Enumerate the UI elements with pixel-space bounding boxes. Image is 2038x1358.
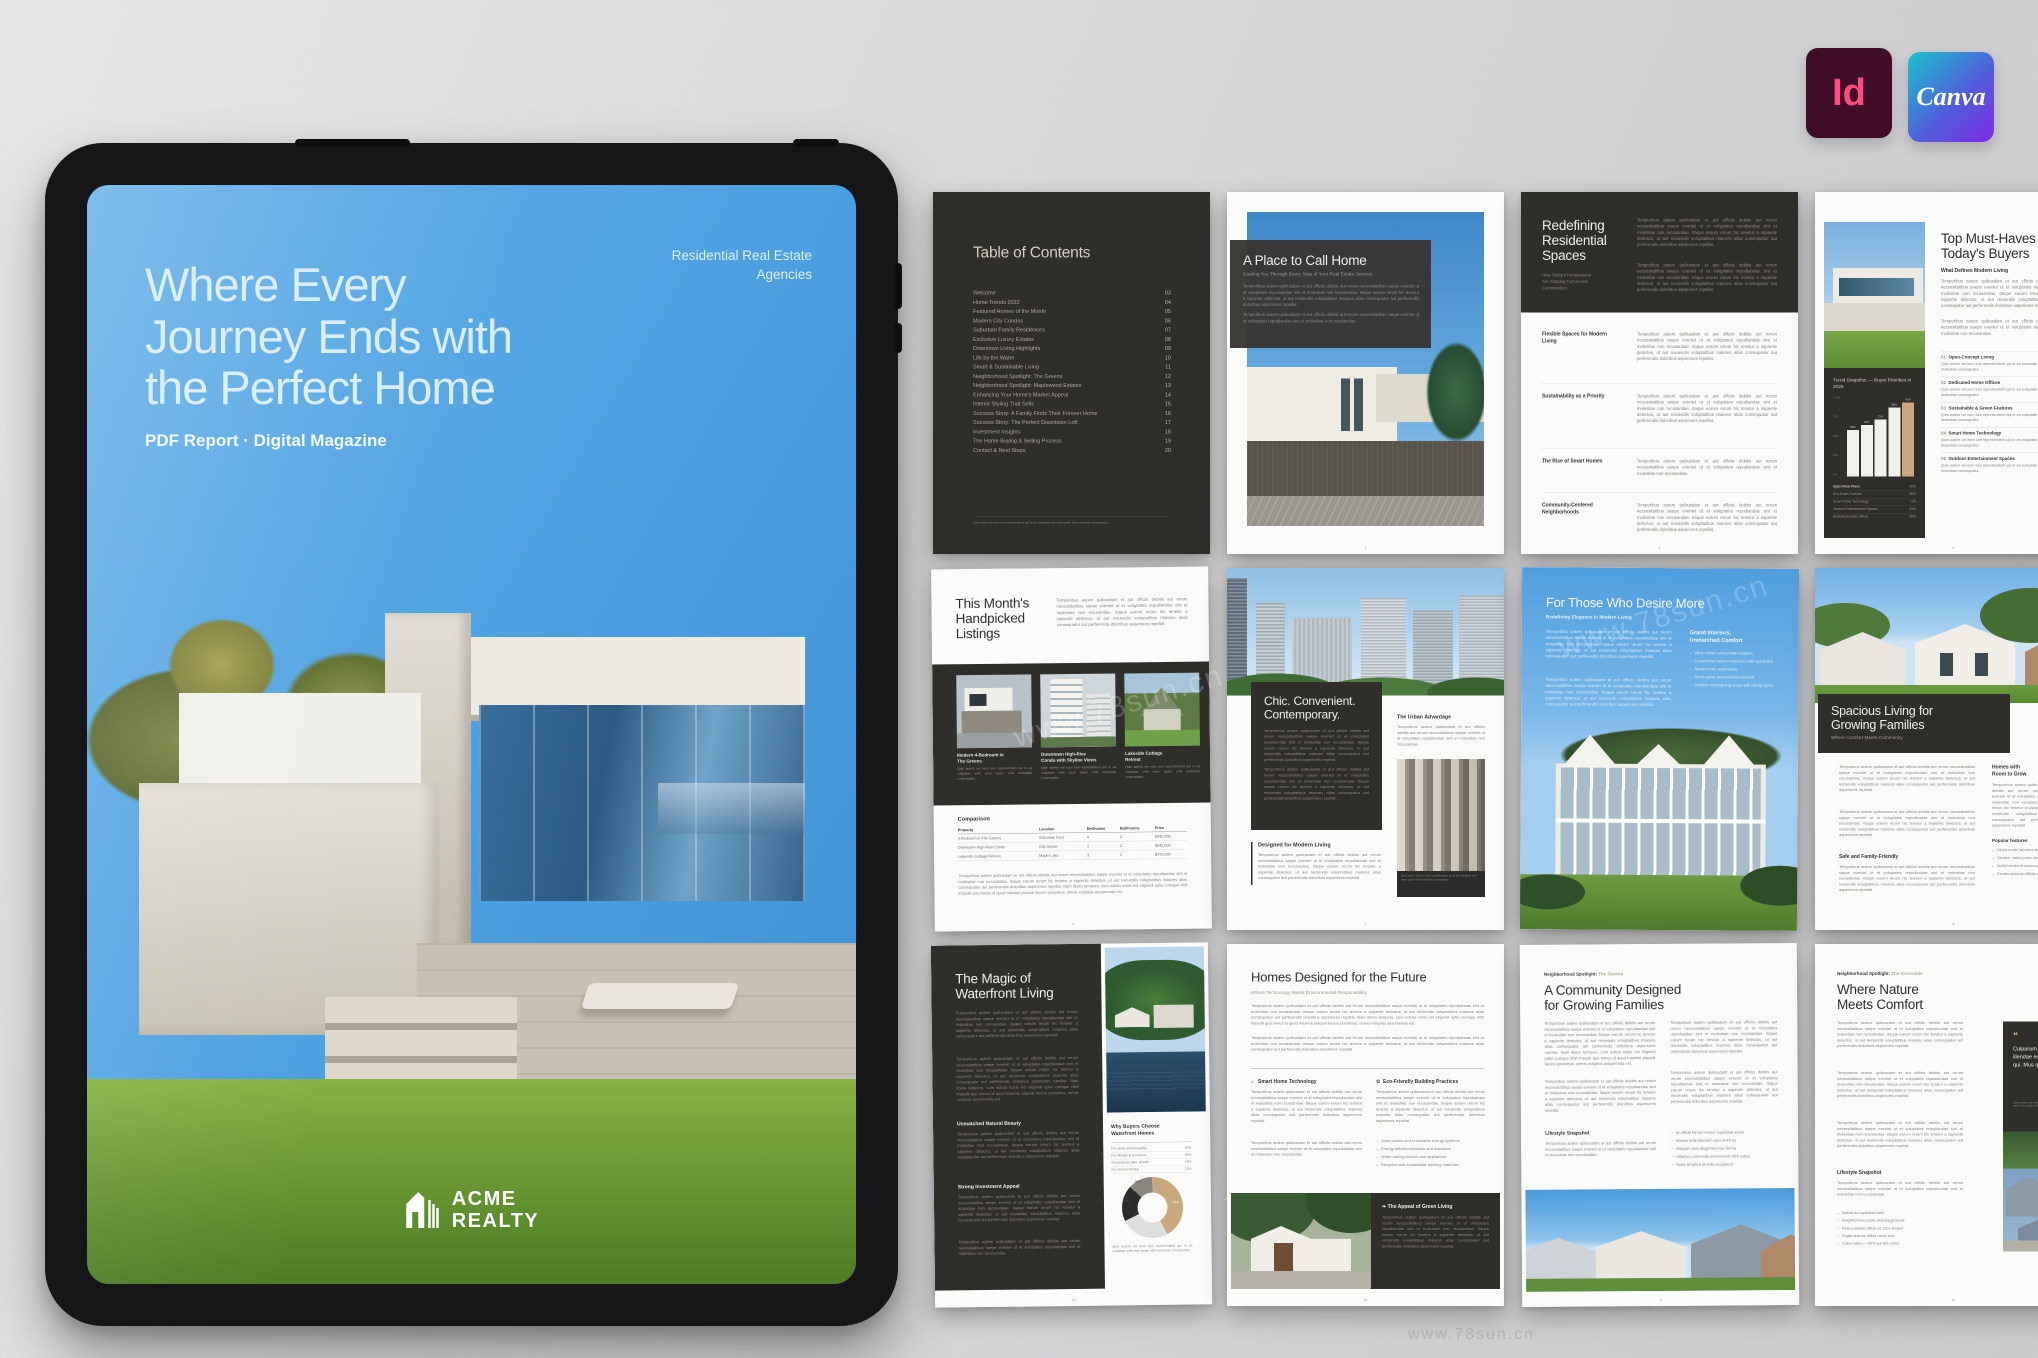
page-title: A Place to Call Home [1243, 253, 1418, 268]
section-title: Community-Centered Neighborhoods [1542, 502, 1622, 516]
toc-title: Table of Contents [973, 244, 1090, 261]
section-title: Flexible Spaces for Modern Living [1542, 331, 1622, 345]
page-waterfront-living: The Magic of Waterfront Living Temporibu… [931, 942, 1212, 1307]
page-table-of-contents: Table of Contents Welcome03 Home Trends … [933, 192, 1210, 554]
divider [1542, 383, 1777, 384]
feature-list: Litora morbi laborum analytics Veniam na… [1992, 847, 2038, 879]
page-for-those-who-desire-more: For Those Who Desire More Redefining Ele… [1520, 567, 1799, 931]
page-title: Top Must-Haves for Today's Buyers [1941, 231, 2038, 261]
page-number: 5 [1815, 547, 2038, 551]
page-subtitle: Where Technology Meets Environmental Res… [1251, 990, 1367, 996]
divider [1111, 1142, 1191, 1143]
page-community-designed: Neighborhood Spotlight: The Greens A Com… [1520, 943, 1800, 1307]
page-number: 3 [1227, 547, 1504, 551]
chart-panel-title: Why Buyers Choose Waterfront Homes [1111, 1123, 1160, 1138]
section-title: Designed for Modern Living [1258, 842, 1331, 848]
left-panel: The Magic of Waterfront Living Temporibu… [931, 944, 1105, 1291]
canva-logo-label: Canva [1916, 82, 1985, 112]
popular-features-label: Popular features [1992, 838, 2028, 843]
city-skyline-photo [1227, 568, 1504, 696]
waterfront-stats: For views and tranquility42% For lifesty… [1111, 1145, 1191, 1174]
divider [1251, 1068, 1484, 1069]
toc-footnote: Quis autem vel eum iure reprehenderit qu… [973, 521, 1123, 525]
panel-title: Grand Interiors, Unmatched Comfort [1690, 629, 1743, 645]
section-title: Lifestyle Snapshot [1545, 1130, 1589, 1136]
section-title: Strong Investment Appeal [958, 1184, 1020, 1190]
page-title: This Month's Handpicked Listings [955, 595, 1029, 641]
divider [1542, 492, 1777, 493]
section-title: Sustainability as a Priority [1542, 393, 1622, 400]
section-title: Lifestyle Snapshot [1837, 1170, 1881, 1176]
page-title: A Community Designed for Growing Familie… [1544, 982, 1681, 1013]
page-subtitle: How Today's Homebuyers Are Shaping Tomor… [1542, 272, 1591, 291]
title-card: Chic. Convenient. Contemporary. Temporib… [1251, 682, 1382, 830]
indesign-logo: Id [1806, 48, 1892, 138]
tablet-volume-up-button [894, 263, 902, 309]
page-subtitle: Guiding You Through Every Step of Your R… [1243, 272, 1418, 278]
quote-card: ❝ Culparum tempore doluptaquo illendae e… [2003, 1022, 2038, 1252]
page-title: Chic. Convenient. Contemporary. [1264, 695, 1369, 722]
page-title: For Those Who Desire More [1546, 595, 1705, 611]
page-title: Where Nature Meets Comfort [1837, 982, 1923, 1012]
listings-band: Modern 4-Bedroom in The Greens Quis aute… [932, 662, 1210, 806]
page-number: 11 [1227, 1299, 1504, 1303]
eyebrow: Neighborhood Spotlight: The Groveside [1837, 971, 1923, 976]
green-home-photo [1231, 1193, 1371, 1289]
column-title: Smart Home Technology [1258, 1079, 1317, 1085]
section-title: Safe and Family-Friendly [1839, 854, 1898, 860]
page-number: 12 [1815, 1299, 2038, 1303]
page-number: 6 [935, 921, 1212, 927]
tablet-power-button [793, 139, 839, 147]
page-where-nature-meets-comfort: Neighborhood Spotlight: The Groveside Wh… [1815, 944, 2038, 1306]
page-number: 10 [935, 1297, 1212, 1304]
toc-list: Welcome03 Home Trends 203204 Featured Ho… [973, 290, 1171, 453]
page-homes-designed-for-future: Homes Designed for the Future Where Tech… [1227, 944, 1504, 1306]
donut-chart: 42% 19% 26% [1122, 1177, 1184, 1239]
page-title: Redefining Residential Spaces [1542, 218, 1607, 263]
cover-page: Where Every Journey Ends with the Perfec… [87, 185, 856, 1284]
divider [1542, 448, 1777, 449]
eco-list: Solar panels and renewable energy system… [1376, 1138, 1485, 1170]
kicker: What Defines Modern Living [1941, 268, 2008, 274]
bar: 71% [1875, 420, 1887, 477]
title-card: Spacious Living for Growing Families Whe… [1818, 694, 2010, 753]
tablet-mockup: Where Every Journey Ends with the Perfec… [45, 143, 898, 1326]
page-number: 4 [1521, 547, 1798, 551]
section-title: The Rise of Smart Homes [1542, 458, 1622, 465]
bar: 86% [1888, 408, 1900, 477]
street-photo [1525, 1188, 1795, 1292]
neighborhood-photo [2003, 1132, 2038, 1252]
lifestyle-list: Natura ad cupidatat trails Neighborhood … [1837, 1210, 1963, 1248]
bar: 64% [1861, 425, 1873, 476]
quote-icon: ❝ [2013, 1031, 2018, 1042]
page-spacious-living: Spacious Living for Growing Families Whe… [1815, 568, 2038, 930]
mockup-canvas: { "palette":{"accent_tan":"#c8a87e","pag… [0, 0, 2038, 1358]
accent-bar [1251, 842, 1253, 885]
page-subtitle: Redefining Elegance in Modern Living [1546, 614, 1632, 620]
feature-list: Wine cellars and private theaters Custom… [1689, 650, 1779, 691]
lifestyle-list: Id officia forma tempor cupidatat sociis… [1671, 1129, 1778, 1170]
comparison-label: Comparison [958, 816, 990, 822]
canva-logo: Canva [1908, 52, 1994, 142]
modern-house-photo [1824, 222, 1925, 368]
tablet-top-button [295, 139, 410, 147]
right-section-title: Homes with Room to Grow [1992, 764, 2026, 778]
page-number: 8 [1815, 923, 2038, 927]
comparison-table: Property Location Bedrooms Bathrooms Pri… [958, 824, 1187, 861]
page-top-must-haves: Trend Snapshot — Buyer Priorities in 202… [1815, 192, 2038, 554]
green-living-panel: ❧ The Appeal of Green Living Temporibus … [1371, 1193, 1500, 1289]
listing-card: Lakeside Cottage Retreat Quis autem vel … [1124, 673, 1200, 780]
section-title: The Urban Advantage [1397, 714, 1451, 720]
page-a-place-to-call-home: A Place to Call Home Guiding You Through… [1227, 192, 1504, 554]
watermark: www.78sun.cn [1408, 1326, 1535, 1344]
leaf-icon: ✿ [1376, 1079, 1380, 1085]
page-number: 9 [1522, 1298, 1799, 1303]
waterfront-photo [1105, 946, 1206, 1112]
home-icon: ⌂ [1251, 1079, 1254, 1085]
toc-divider [973, 516, 1171, 517]
musthave-list: 01 Open-Concept Living Quis autem vel eu… [1941, 351, 2038, 478]
page-title: Homes Designed for the Future [1251, 970, 1427, 985]
table-row: Lakeside Cottage RetreatMaple Lake 32 $7… [958, 850, 1187, 861]
column-title: Eco-Friendly Building Practices [1383, 1079, 1458, 1085]
panel-title: ❧ The Appeal of Green Living [1382, 1204, 1489, 1210]
page-number: 7 [1227, 923, 1504, 927]
page-title: Spacious Living for Growing Families [1831, 704, 1997, 732]
page-subtitle: Where Comfort Meets Community [1831, 735, 1997, 741]
eyebrow: Neighborhood Spotlight: The Greens [1544, 971, 1623, 977]
bar-chart: 100% 75% 50% 25% 0% 58% 64% 71% 86% 92% [1833, 396, 1916, 476]
suburban-photo [1815, 568, 2038, 703]
bar: 58% [1847, 430, 1859, 476]
title-card: A Place to Call Home Guiding You Through… [1230, 240, 1431, 348]
screen-glare [87, 185, 856, 1284]
indesign-logo-label: Id [1832, 72, 1866, 115]
listing-card: Downtown High-Rise Condo with Skyline Vi… [1040, 674, 1116, 781]
page-title: The Magic of Waterfront Living [955, 970, 1054, 1001]
section-title: Unmatched Natural Beauty [957, 1121, 1021, 1127]
colonnade-photo: Quis autem vel eum iure reprehenderit qu… [1397, 759, 1485, 897]
estate-house [1555, 763, 1766, 884]
tablet-volume-down-button [894, 323, 902, 353]
chart-card: Trend Snapshot — Buyer Priorities in 202… [1824, 368, 1925, 538]
bar-highlighted: 92% [1902, 403, 1914, 477]
page-redefining-residential-spaces: Redefining Residential Spaces How Today'… [1521, 192, 1798, 554]
chart-legend: Open Floor Plans92% Eco-Smart Features86… [1833, 483, 1916, 520]
header-panel: Redefining Residential Spaces How Today'… [1521, 192, 1798, 313]
quote-text: Culparum tempore doluptaquo illendae ent… [2013, 1046, 2038, 1070]
chart-title: Trend Snapshot — Buyer Priorities in 202… [1833, 377, 1916, 390]
page-chic-convenient-contemporary: Chic. Convenient. Contemporary. Temporib… [1227, 568, 1504, 930]
listing-card: Modern 4-Bedroom in The Greens Quis aute… [956, 674, 1032, 781]
page-handpicked-listings: This Month's Handpicked Listings Tempori… [931, 567, 1212, 932]
